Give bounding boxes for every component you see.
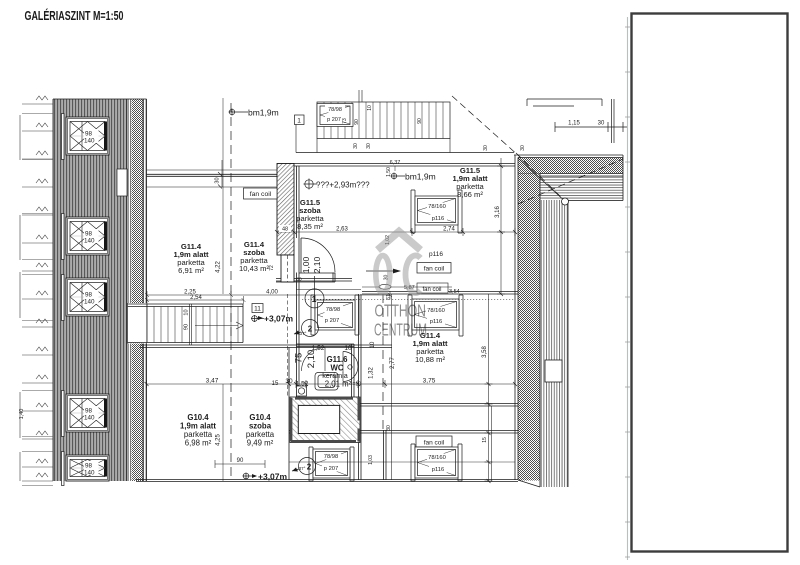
svg-text:8,35 m²: 8,35 m² [297,222,323,231]
svg-text:10,88 m²: 10,88 m² [415,355,445,364]
svg-text:30: 30 [598,121,605,127]
svg-text:98: 98 [85,131,93,138]
svg-text:48: 48 [282,227,288,233]
svg-text:78/160: 78/160 [428,455,446,461]
svg-text:90: 90 [184,324,190,330]
svg-text:???+2,93m???: ???+2,93m??? [316,181,370,190]
svg-text:61: 61 [386,294,392,300]
svg-text:3,75: 3,75 [423,378,436,385]
svg-text:3,16: 3,16 [495,206,501,218]
svg-text:10,43 m²: 10,43 m² [239,264,269,273]
svg-text:4,25: 4,25 [216,434,222,446]
svg-text:98: 98 [85,292,93,299]
svg-text:2,63: 2,63 [336,227,348,233]
svg-text:1,50: 1,50 [386,167,392,177]
svg-text:fan coil: fan coil [424,266,445,273]
svg-text:30: 30 [386,425,392,431]
svg-text:98: 98 [85,408,93,415]
svg-text:+3,07m: +3,07m [264,314,294,324]
svg-text:1,32: 1,32 [369,367,375,379]
svg-text:bm1,9m: bm1,9m [405,172,436,182]
svg-text:1,00: 1,00 [301,256,311,273]
svg-text:p116: p116 [432,467,444,473]
svg-text:fan coil: fan coil [424,440,445,447]
svg-text:2: 2 [307,463,312,472]
svg-text:6,91 m²: 6,91 m² [178,266,204,275]
svg-text:2,10: 2,10 [306,350,317,369]
svg-text:1,15: 1,15 [568,121,580,127]
svg-text:90: 90 [237,458,244,464]
svg-text:1,52: 1,52 [296,381,309,388]
svg-text:140: 140 [84,238,95,245]
svg-text:fan coil: fan coil [250,191,272,198]
svg-text:1: 1 [297,118,301,125]
svg-text:78/160: 78/160 [428,204,446,210]
svg-text:2,77: 2,77 [390,357,396,369]
svg-text:78/98: 78/98 [326,307,341,313]
svg-text:3,54: 3,54 [449,289,460,295]
svg-text:15: 15 [272,381,279,387]
svg-text:11: 11 [254,306,261,313]
svg-text:78/98: 78/98 [324,454,339,460]
svg-text:1: 1 [312,294,317,304]
svg-text:OTTHON: OTTHON [375,300,427,320]
svg-text:GALÉRIASZINT M=1:50: GALÉRIASZINT M=1:50 [25,8,124,23]
svg-text:15: 15 [482,437,488,443]
svg-text:p116: p116 [430,319,442,325]
svg-text:p 207: p 207 [327,117,341,123]
svg-text:p 207: p 207 [325,318,340,324]
svg-text:10: 10 [367,105,373,111]
svg-text:+3,07m: +3,07m [258,472,288,482]
svg-text:78/98: 78/98 [328,107,342,113]
svg-text:37°: 37° [299,466,306,471]
svg-text:30: 30 [520,145,526,151]
svg-text:72: 72 [269,265,275,271]
svg-text:30: 30 [353,143,359,149]
svg-text:78/160: 78/160 [427,308,445,314]
svg-text:2,54: 2,54 [190,295,202,301]
svg-text:98: 98 [85,231,93,238]
svg-text:2: 2 [308,325,313,334]
svg-text:140: 140 [84,470,95,477]
svg-text:6,98 m²: 6,98 m² [185,439,212,448]
svg-text:fan coil: fan coil [422,287,441,293]
svg-text:1,03: 1,03 [368,455,374,465]
svg-text:30: 30 [215,177,221,183]
svg-text:90: 90 [417,118,423,124]
svg-text:140: 140 [84,138,95,145]
svg-text:37°: 37° [300,331,307,336]
svg-text:75: 75 [294,353,305,364]
svg-text:30: 30 [285,378,293,385]
svg-text:10: 10 [370,341,376,348]
svg-text:140: 140 [84,415,95,422]
svg-text:p116: p116 [432,216,444,222]
svg-text:=10: =10 [353,382,362,388]
svg-text:4,22: 4,22 [216,261,222,273]
svg-text:10: 10 [184,309,190,315]
svg-text:140: 140 [84,299,95,306]
svg-text:9,49 m²: 9,49 m² [247,439,274,448]
svg-text:p 207: p 207 [324,466,339,472]
svg-text:p116: p116 [429,251,443,258]
svg-text:3,58: 3,58 [482,346,488,358]
svg-text:80: 80 [296,277,302,283]
svg-text:CENTRUM: CENTRUM [374,319,427,339]
svg-text:10: 10 [344,345,352,352]
svg-text:bm1,9m: bm1,9m [248,108,279,118]
svg-text:1,40: 1,40 [19,409,25,420]
svg-text:90: 90 [354,119,360,125]
svg-text:3,47: 3,47 [206,378,219,385]
svg-text:30: 30 [366,143,372,149]
svg-text:2,74: 2,74 [443,227,455,233]
svg-text:2,10: 2,10 [312,256,322,273]
svg-text:73: 73 [342,118,348,124]
svg-text:6,37: 6,37 [390,160,401,166]
svg-text:30: 30 [483,145,489,151]
svg-text:4,00: 4,00 [266,290,278,296]
svg-text:98: 98 [85,463,93,470]
svg-text:8,66 m²: 8,66 m² [457,190,483,199]
